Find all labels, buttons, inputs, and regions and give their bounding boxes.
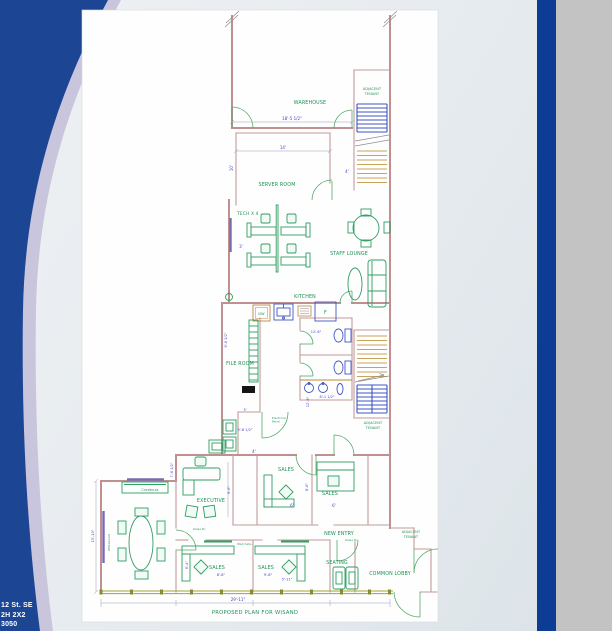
room-label-common-lobby: COMMON LOBBY [369,571,411,577]
label-fridge: F [324,310,327,316]
dim-12-9: 12'-9" [306,396,310,407]
plan-title: PROPOSED PLAN FOR WISAND [212,610,298,616]
dim-6-a: 6' [290,503,294,508]
room-label-adjacent-tenant-right: ADJACENT [402,530,421,534]
dim-18-5: 18'-5 1/2" [282,116,302,121]
dim-8-6: 8'-6" [305,482,309,491]
corner-line-2: 2H 2X2 [1,611,33,621]
label-whiteboard: Whiteboard [107,534,111,551]
dim-3-file: 3' [243,408,246,412]
dim-12-6: 12'-6" [311,330,322,334]
room-label-sales-4: SALES [258,565,274,571]
dim-14: 14' [280,145,286,150]
svg-text:Panel: Panel [272,420,280,424]
svg-text:TENANT: TENANT [364,92,380,96]
dim-8-8: 8'-8" [217,573,226,577]
room-label-sales-1: SALES [278,467,294,473]
dim-29-11: 29'-11" [231,597,246,602]
dim-9-8: 9'-8" [264,573,273,577]
room-label-adjacent-tenant-top: ADJACENT [363,87,382,91]
dim-10: 10' [229,165,234,171]
room-label-adjacent-tenant-mid: ADJACENT [364,421,383,425]
room-label-sales-3: SALES [209,565,225,571]
room-label-file-room: FILE ROOM [226,361,254,367]
slide-corner-text: 12 St. SE 2H 2X2 3050 [1,601,33,630]
dim-5-11: 5'-11" [282,578,293,582]
electrical-panel [242,386,255,393]
corner-line-3: 3050 [1,620,33,630]
corner-line-1: 12 St. SE [1,601,33,611]
svg-text:TENANT: TENANT [403,535,419,539]
label-credenza: Credenza [141,488,158,492]
room-label-staff-lounge: STAFF LOUNGE [330,251,368,257]
room-label-new-entry: NEW ENTRY [324,531,354,537]
dim-6-4: 6'-4" [185,560,189,569]
label-wall-cabs: Wall Cabs. [237,542,252,546]
room-label-warehouse: WAREHOUSE [294,100,326,106]
room-label-kitchen: KITCHEN [294,294,316,300]
desktop-background: WAREHOUSE SERVER ROOM TECH X 4 STAFF LOU… [0,0,612,631]
floor-plan-drawing: WAREHOUSE SERVER ROOM TECH X 4 STAFF LOU… [0,0,612,631]
dim-15-10: 15'-10" [91,529,95,542]
dim-9-6h: 9'-6 1/2" [237,428,252,432]
floor-plan-page [82,10,438,622]
slide-right-accent-bar [537,0,556,631]
room-label-sales-2: SALES [322,491,338,497]
label-glass-door-1: Glass Dr. [193,527,206,531]
dim-6-6: 6'-6 1/2" [224,332,228,347]
dim-6-b: 6' [332,503,336,508]
room-label-executive: EXECUTIVE [197,498,225,504]
label-dishwasher: DW [258,312,265,316]
room-label-seating: SEATING [326,560,348,566]
svg-text:TENANT: TENANT [365,426,381,430]
dim-4-sales: 4' [252,449,256,454]
dim-9-6: 9'-6" [227,485,231,494]
dim-4-top: 4' [345,169,349,174]
dim-7-6: 7'-6 1/2" [170,462,174,477]
label-glass-door-2: Glass Dr. [345,538,358,542]
room-label-server-room: SERVER ROOM [259,182,296,188]
room-label-tech: TECH X 4 [236,211,259,217]
dim-8-1: 8'-1 1/2" [319,395,334,399]
dim-3-tech: 3' [239,244,243,249]
